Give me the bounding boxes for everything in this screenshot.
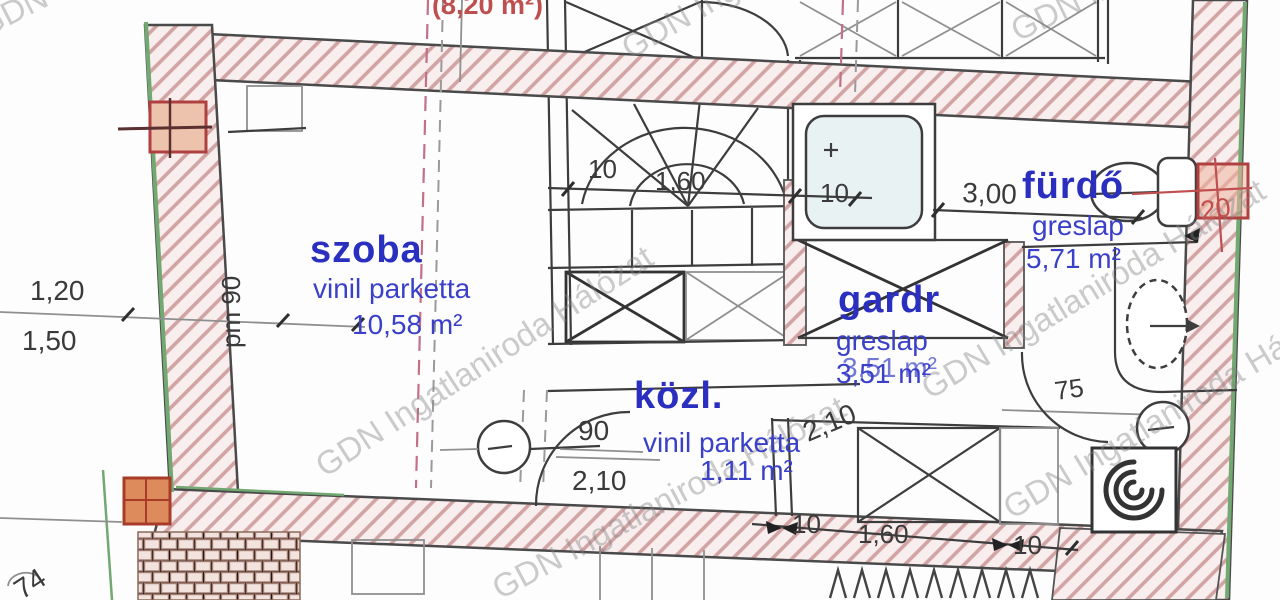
room-name-furdo: fürdő xyxy=(1022,165,1124,207)
dim-bottom-mid: 1,60 xyxy=(858,519,909,549)
dim-bottom-right: 10 xyxy=(1013,530,1042,560)
column-marker-bottom-left xyxy=(124,478,170,524)
dim-left-upper: 1,20 xyxy=(30,275,85,306)
dim-stair-top-left: 10 xyxy=(588,154,617,184)
dim-stair-top-right: 10 xyxy=(820,178,849,208)
dim-corner-bottom-left: 74 xyxy=(8,562,51,600)
floorplan: GDN Ingatlaniroda Hálózat GDN Ingatlanir… xyxy=(0,0,1280,600)
dim-kozl-door: 90 xyxy=(578,415,609,446)
dim-kozl-width: 2,10 xyxy=(572,465,627,496)
dim-left-lower: 1,50 xyxy=(22,325,77,356)
paving-area xyxy=(138,532,300,600)
floorplan-canvas: GDN Ingatlaniroda Hálózat GDN Ingatlanir… xyxy=(0,0,1280,600)
watermark: GDN Ingatlaniroda Hálózat xyxy=(486,388,852,600)
column-marker-top-left xyxy=(118,98,212,158)
dim-bottom-left: 10 xyxy=(792,509,821,539)
room-floor-szoba: vinil parketta xyxy=(313,273,471,304)
shower-tray xyxy=(793,104,935,240)
dim-gardr-door: 75 xyxy=(1053,372,1086,406)
room-floor-kozl: vinil parketta xyxy=(643,427,801,458)
room-name-szoba: szoba xyxy=(310,229,423,271)
room-area-gardr-overprint: 3,51 m² xyxy=(842,352,937,383)
room-name-gardr: gardr xyxy=(838,279,940,321)
railing xyxy=(830,570,1038,598)
dim-furdo-width: 3,00 xyxy=(962,177,1018,210)
dim-stair-top-mid: 1,60 xyxy=(655,166,706,196)
dim-parapet: pm 90 xyxy=(216,276,246,348)
wall-bottom-right xyxy=(1052,528,1225,600)
room-area-kozl: 1,11 m² xyxy=(700,455,793,486)
room-name-kozl: közl. xyxy=(634,375,723,417)
wall-top xyxy=(208,34,1205,128)
room-area-furdo: 5,71 m² xyxy=(1026,243,1121,274)
boundary-line-bottom-left xyxy=(103,470,112,600)
room-floor-furdo: greslap xyxy=(1032,210,1124,241)
upper-room-area-label: (8,20 m²) xyxy=(432,0,543,20)
room-area-szoba: 10,58 m² xyxy=(352,309,463,340)
dim-wall-thickness-right: 20 xyxy=(1199,192,1233,226)
